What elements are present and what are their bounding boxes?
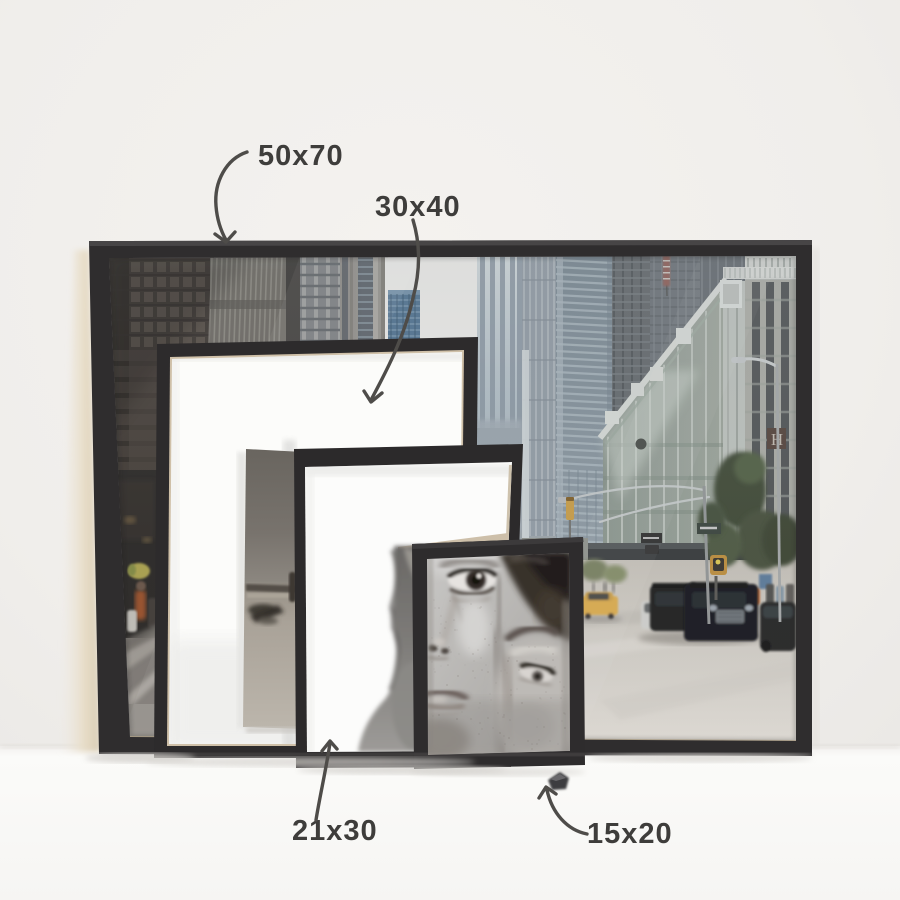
svg-text:30x40: 30x40 bbox=[375, 191, 461, 223]
svg-text:15x20: 15x20 bbox=[587, 818, 673, 850]
svg-text:21x30: 21x30 bbox=[292, 815, 378, 847]
svg-text:50x70: 50x70 bbox=[258, 140, 344, 172]
